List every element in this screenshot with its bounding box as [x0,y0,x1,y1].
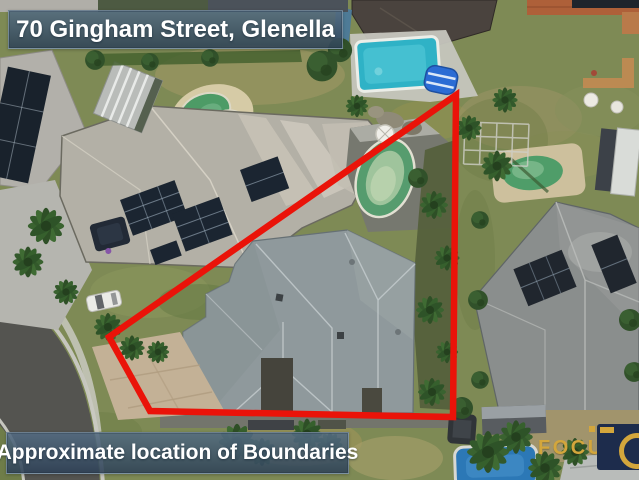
scene-illustration [0,0,639,480]
focus-logo-tick [589,426,595,432]
boundary-disclaimer-banner: Approximate location of Boundaries [6,432,349,474]
address-text: 70 Gingham Street, Glenella [16,16,335,44]
address-banner: 70 Gingham Street, Glenella [8,10,343,49]
focus-logo-icon [597,424,639,470]
aerial-photo-canvas: 70 Gingham Street, Glenella Approximate … [0,0,639,480]
boundary-disclaimer-text: Approximate location of Boundaries [0,441,358,465]
focus-watermark: FOCUS [538,423,639,475]
